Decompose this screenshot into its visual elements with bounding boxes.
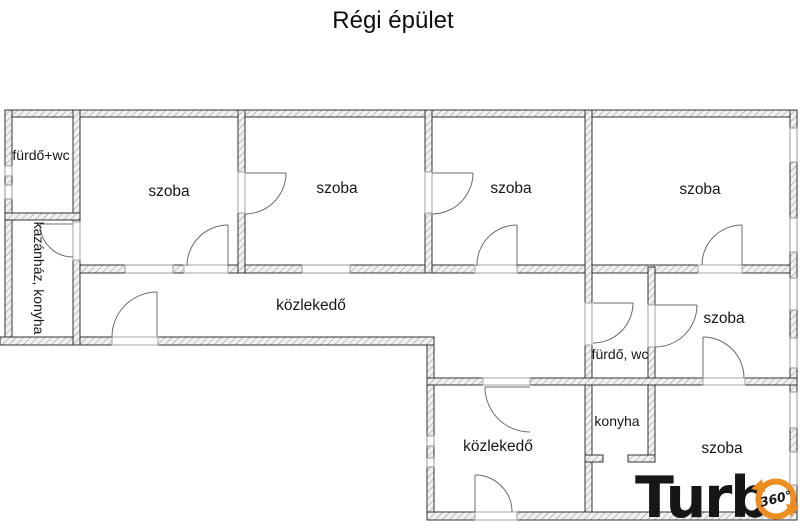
window: [427, 458, 434, 467]
door-arc: [593, 303, 633, 343]
room-label-szoba-2: szoba: [316, 180, 358, 197]
floor-plan-svg: Régi épület: [0, 0, 800, 523]
walls: [0, 110, 797, 520]
door-opening: [184, 265, 228, 273]
window: [427, 436, 434, 446]
window: [790, 452, 797, 485]
room-label-szoba-3: szoba: [490, 180, 532, 197]
door-arc: [703, 337, 744, 378]
window: [5, 185, 12, 199]
wall-segment: [628, 455, 655, 462]
door-arc: [485, 387, 530, 432]
logo-wordmark: Turb: [635, 465, 769, 523]
window: [790, 218, 797, 252]
room-label-boiler-kitchen: kazánház, konyha: [31, 222, 47, 335]
door-arc: [475, 475, 512, 512]
window: [5, 166, 12, 176]
wall-segment: [0, 337, 434, 345]
room-label-corridor-lower: közlekedő: [463, 438, 533, 455]
wall-segment: [585, 455, 603, 462]
room-label-corridor-upper: közlekedő: [276, 297, 346, 314]
door-opening: [703, 378, 745, 385]
brand-logo: Turb 360°: [635, 465, 799, 523]
door-arc: [245, 173, 286, 214]
room-label-bath-mid: fürdő, wc: [592, 346, 649, 362]
door-opening: [585, 303, 592, 345]
door-arc: [702, 225, 742, 265]
room-label-szoba-mid: szoba: [703, 310, 745, 327]
door-arc: [655, 305, 697, 347]
room-label-bath-top: fürdő+wc: [12, 147, 69, 163]
door-opening: [112, 337, 158, 345]
door-arc: [187, 225, 228, 266]
door-arc: [112, 292, 157, 337]
room-label-szoba-bottom: szoba: [701, 440, 743, 457]
window: [790, 278, 797, 310]
wall-segment: [5, 110, 797, 117]
door-arc: [477, 225, 517, 266]
door-opening: [698, 265, 742, 273]
room-label-kitchen: konyha: [594, 413, 639, 429]
window: [302, 265, 350, 273]
floor-plan-page: Régi épület: [0, 0, 800, 523]
wall-segment: [5, 213, 80, 220]
door-opening: [475, 265, 517, 273]
door-opening: [425, 172, 432, 213]
door-opening: [483, 378, 530, 385]
window: [125, 265, 173, 273]
wall-segment: [648, 267, 655, 462]
room-label-szoba-1: szoba: [148, 183, 190, 200]
room-label-szoba-4: szoba: [679, 181, 721, 198]
door-opening: [238, 172, 245, 213]
door-opening: [73, 222, 80, 260]
door-opening: [475, 512, 517, 520]
door-opening: [648, 305, 655, 347]
window: [790, 128, 797, 162]
plan-title: Régi épület: [332, 7, 454, 34]
window: [790, 338, 797, 368]
room-labels: fürdő+wc kazánház, konyha szoba szoba sz…: [12, 147, 745, 457]
door-arc: [432, 173, 473, 214]
wall-segment: [5, 110, 12, 345]
wall-segment: [427, 345, 434, 520]
window: [790, 392, 797, 428]
